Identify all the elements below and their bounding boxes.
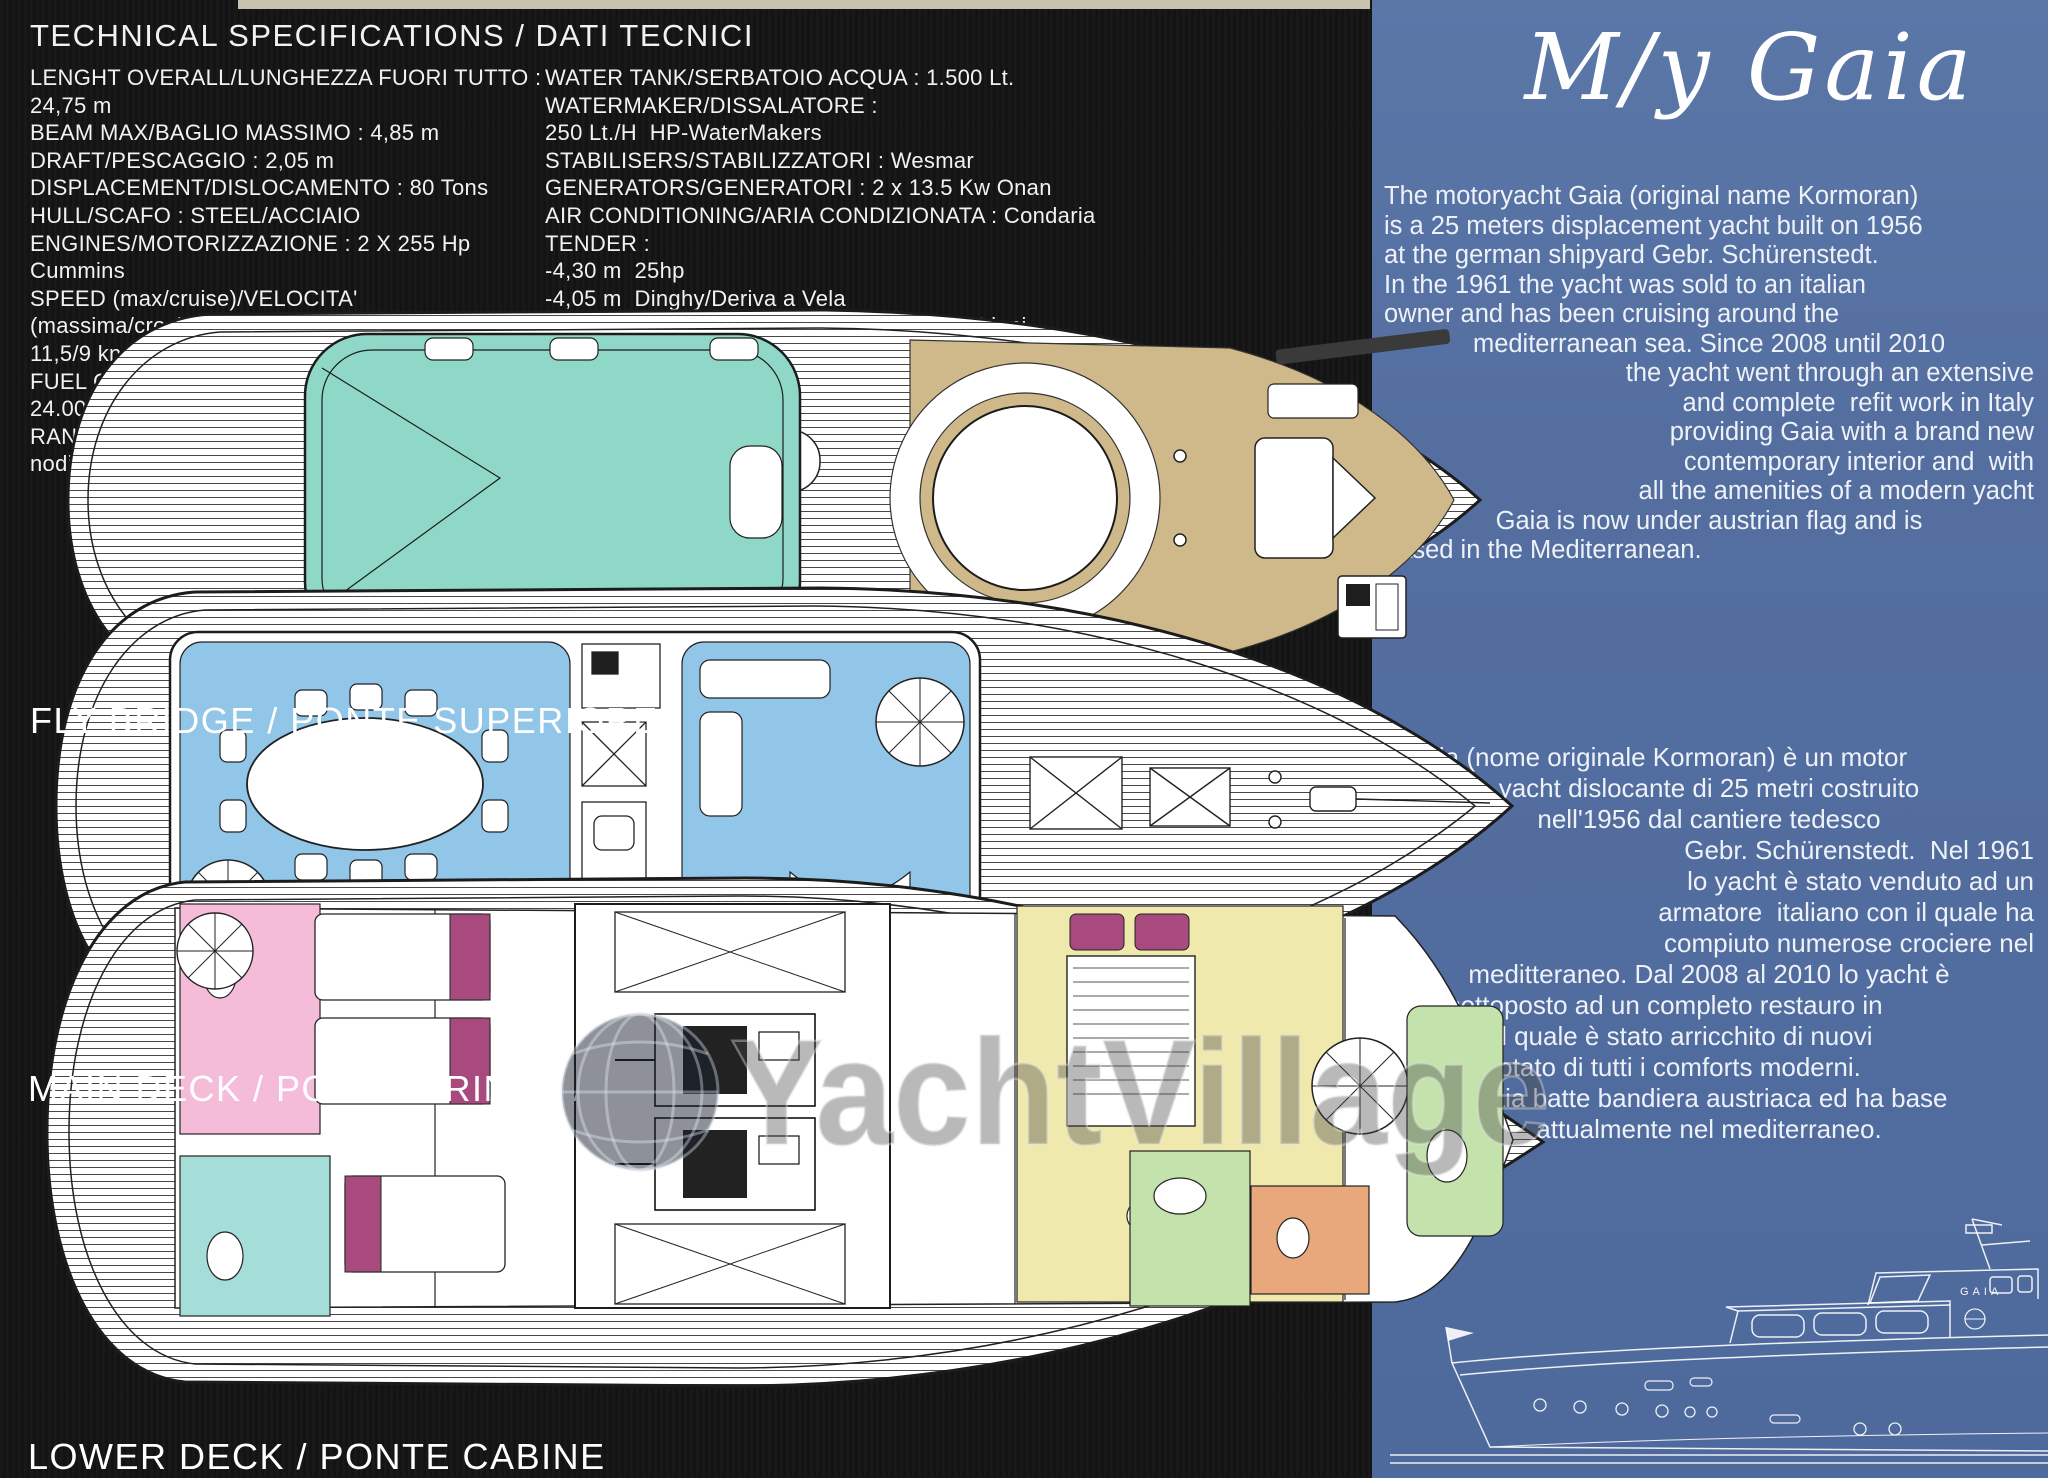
spec-line: 250 Lt./H HP-WaterMakers [545,119,1096,147]
globe-icon [562,1014,718,1170]
paragraph-line: is a 25 meters displacement yacht built … [1378,212,2040,242]
deck-fittings [1645,1378,1800,1423]
spec-line: ENGINES/MOTORIZZAZIONE : 2 X 255 Hp Cumm… [30,230,545,285]
portholes [1534,1399,1901,1435]
spec-line: DRAFT/PESCAGGIO : 2,05 m [30,147,545,175]
hull-profile [1452,1335,2048,1451]
sketch-boat-name: GAIA [1960,1286,2002,1298]
lower-orange-cabin [1251,1186,1369,1294]
specs-title: TECHNICAL SPECIFICATIONS / DATI TECNICI [30,18,1360,54]
spec-line: -4,30 m 25hp [545,257,1096,285]
lower-deck-label: LOWER DECK / PONTE CABINE [28,1436,606,1478]
spec-line: STABILISERS/STABILIZZATORI : Wesmar [545,147,1096,175]
spec-line: WATER TANK/SERBATOIO ACQUA : 1.500 Lt. [545,64,1096,92]
brochure-page: M/y Gaia The motoryacht Gaia (original n… [0,0,2048,1478]
fly-fairlead [1174,534,1186,546]
main-deck-label: MAIN DECK / PONTE PRINCIPALE [28,1068,645,1110]
paragraph-line: In the 1961 the yacht was sold to an ita… [1378,271,2040,301]
lounge-spiral-stair [876,678,964,766]
spec-line: AIR CONDITIONING/ARIA CONDIZIONATA : Con… [545,202,1096,230]
paragraph-line: at the german shipyard Gebr. Schürensted… [1378,241,2040,271]
watermark-text: YachtVillage [730,1008,1550,1176]
spec-line: TENDER : [545,230,1096,258]
mast [1966,1219,2030,1269]
single-bed [315,914,490,1000]
yacht-profile-sketch: GAIA [1390,1215,2048,1478]
yachtvillage-watermark: YachtVillage [555,992,1565,1192]
superstructure [1726,1269,2038,1343]
spec-line: HULL/SCAFO : STEEL/ACCIAIO [30,202,545,230]
scan-edge [238,0,1370,9]
fly-radar-arch [1275,329,1451,365]
spec-line: GENERATORS/GENERATORI : 2 x 13.5 Kw Onan [545,174,1096,202]
fly-fairlead [1174,450,1186,462]
stern-spiral-stair [177,913,253,989]
yacht-name-title: M/y Gaia [1372,14,2048,121]
spec-line: LENGHT OVERALL/LUNGHEZZA FUORI TUTTO : 2… [30,64,545,119]
paragraph-line: The motoryacht Gaia (original name Kormo… [1378,182,2040,212]
spec-line: WATERMAKER/DISSALATORE : [545,92,1096,120]
spec-line: BEAM MAX/BAGLIO MASSIMO : 4,85 m [30,119,545,147]
spec-line: DISPLACEMENT/DISLOCAMENTO : 80 Tons [30,174,545,202]
bow-flag [1446,1327,1474,1363]
fly-bridge-label: FLY BRIDGE / PONTE SUPERIORE [30,700,659,742]
